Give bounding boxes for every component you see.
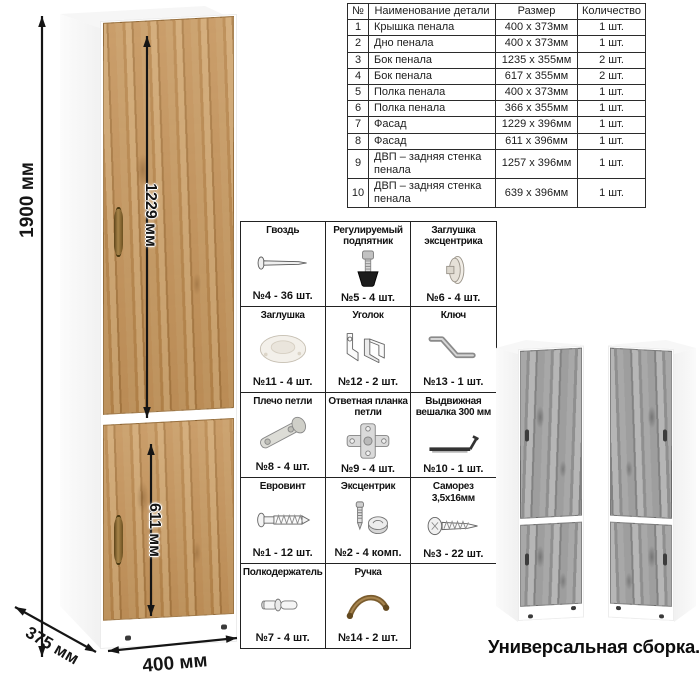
hardware-cell: Евровинт№1 - 12 шт. bbox=[240, 477, 326, 564]
door-handle bbox=[114, 517, 123, 563]
cabinet-plinth bbox=[103, 614, 234, 647]
table-cell: 1257 x 396мм bbox=[496, 149, 578, 178]
door-handle bbox=[663, 429, 667, 441]
corner-bracket-icon bbox=[339, 322, 397, 376]
table-cell: 1 шт. bbox=[578, 149, 646, 178]
assembly-diagram-page: 1900 мм 1229 мм 611 мм 400 мм 375 мм №На… bbox=[0, 0, 700, 683]
table-cell: 2 bbox=[348, 36, 369, 52]
hardware-name: Уголок bbox=[352, 310, 383, 322]
hardware-cell: Заглушка эксцентрика№6 - 4 шт. bbox=[410, 221, 496, 308]
hardware-name: Ключ bbox=[441, 310, 466, 322]
table-cell: 611 x 396мм bbox=[496, 133, 578, 149]
hardware-qty: №14 - 2 шт. bbox=[338, 632, 398, 644]
hardware-cell: Гвоздь№4 - 36 шт. bbox=[240, 221, 326, 308]
mini-cabinet-left bbox=[492, 340, 588, 628]
shelf-pin-icon bbox=[254, 578, 312, 632]
adjustable-foot-icon bbox=[339, 248, 397, 292]
table-cell: 4 bbox=[348, 68, 369, 84]
hardware-name: Ответная планка петли bbox=[328, 396, 408, 419]
hardware-cell: Выдвижная вешалка 300 мм№10 - 1 шт. bbox=[410, 392, 496, 479]
table-cell: 639 x 396мм bbox=[496, 179, 578, 208]
parts-table: №Наименование деталиРазмерКоличество 1Кр… bbox=[347, 3, 646, 208]
nail-icon bbox=[254, 236, 312, 290]
table-cell: 1229 x 396мм bbox=[496, 117, 578, 133]
table-cell: 5 bbox=[348, 84, 369, 100]
hex-key-icon bbox=[424, 322, 482, 376]
table-row: 8Фасад611 x 396мм1 шт. bbox=[348, 133, 646, 149]
cabinet-foot bbox=[616, 606, 621, 610]
table-header-cell: Наименование детали bbox=[369, 4, 496, 20]
hardware-qty: №2 - 4 комп. bbox=[334, 547, 401, 559]
hardware-cell: Регулируемый подпятник№5 - 4 шт. bbox=[325, 221, 411, 308]
hardware-cell: Плечо петли№8 - 4 шт. bbox=[240, 392, 326, 479]
table-cell: Дно пенала bbox=[369, 36, 496, 52]
door-handle bbox=[525, 429, 529, 441]
universal-assembly-caption: Универсальная сборка. bbox=[488, 636, 700, 658]
hardware-cell-empty bbox=[410, 563, 496, 650]
hardware-qty: №12 - 2 шт. bbox=[338, 376, 398, 388]
mini-upper-door bbox=[520, 348, 582, 519]
table-row: 2Дно пенала400 x 373мм1 шт. bbox=[348, 36, 646, 52]
table-cell: 400 x 373мм bbox=[496, 36, 578, 52]
table-cell: 1 шт. bbox=[578, 36, 646, 52]
hardware-cell: Ручка№14 - 2 шт. bbox=[325, 563, 411, 650]
mini-upper-door bbox=[610, 348, 672, 519]
hardware-name: Заглушка эксцентрика bbox=[413, 225, 493, 248]
table-cell: 1 шт. bbox=[578, 117, 646, 133]
table-header-cell: Размер bbox=[496, 4, 578, 20]
hardware-name: Полкодержатель bbox=[243, 567, 323, 579]
table-row: 9ДВП – задняя стенка пенала1257 x 396мм1… bbox=[348, 149, 646, 178]
table-row: 3Бок пенала1235 x 355мм2 шт. bbox=[348, 52, 646, 68]
hardware-qty: №11 - 4 шт. bbox=[253, 376, 313, 388]
table-row: 5Полка пенала400 x 373мм1 шт. bbox=[348, 84, 646, 100]
table-cell: Бок пенала bbox=[369, 52, 496, 68]
dimension-label-width: 400 мм bbox=[142, 650, 209, 678]
cabinet-foot bbox=[221, 624, 227, 629]
lower-door bbox=[103, 418, 234, 621]
hardware-qty: №13 - 1 шт. bbox=[423, 376, 483, 388]
handle-icon bbox=[339, 578, 397, 632]
hardware-name: Заглушка bbox=[261, 310, 305, 322]
table-cell: ДВП – задняя стенка пенала bbox=[369, 179, 496, 208]
hardware-name: Гвоздь bbox=[266, 225, 299, 237]
hardware-qty: №9 - 4 шт. bbox=[341, 463, 395, 475]
table-cell: 1 шт. bbox=[578, 84, 646, 100]
table-cell: 1 шт. bbox=[578, 20, 646, 36]
dimension-label-lower-door: 611 мм bbox=[145, 503, 163, 557]
hardware-qty: №6 - 4 шт. bbox=[426, 292, 480, 304]
hardware-grid: Гвоздь№4 - 36 шт.Регулируемый подпятник№… bbox=[240, 221, 496, 649]
mini-lower-door bbox=[520, 522, 582, 607]
table-cell: 400 x 373мм bbox=[496, 84, 578, 100]
universal-assembly-illustration bbox=[492, 340, 700, 630]
hardware-cell: Ключ№13 - 1 шт. bbox=[410, 306, 496, 393]
cabinet-side-panel bbox=[55, 6, 105, 661]
cabinet-foot bbox=[125, 635, 131, 640]
upper-door bbox=[103, 16, 234, 415]
hardware-qty: №1 - 12 шт. bbox=[253, 547, 313, 559]
mini-cabinet-right bbox=[604, 340, 700, 628]
table-cell: 1 шт. bbox=[578, 179, 646, 208]
hardware-cell: Полкодержатель№7 - 4 шт. bbox=[240, 563, 326, 650]
hardware-name: Эксцентрик bbox=[341, 481, 395, 493]
mini-lower-door bbox=[610, 522, 672, 607]
table-cell: Крышка пенала bbox=[369, 20, 496, 36]
table-cell: 6 bbox=[348, 101, 369, 117]
table-row: 7Фасад1229 x 396мм1 шт. bbox=[348, 117, 646, 133]
table-header-cell: № bbox=[348, 4, 369, 20]
hardware-cell: Ответная планка петли№9 - 4 шт. bbox=[325, 392, 411, 479]
hardware-qty: №3 - 22 шт. bbox=[423, 548, 483, 560]
table-row: 4Бок пенала617 x 355мм2 шт. bbox=[348, 68, 646, 84]
table-cell: Полка пенала bbox=[369, 101, 496, 117]
door-handle bbox=[114, 209, 123, 255]
door-handle bbox=[663, 553, 667, 565]
cam-cap-icon bbox=[424, 248, 482, 292]
dimension-label-upper-door: 1229 мм bbox=[141, 183, 159, 247]
table-header-row: №Наименование деталиРазмерКоличество bbox=[348, 4, 646, 20]
table-cell: 617 x 355мм bbox=[496, 68, 578, 84]
table-cell: 7 bbox=[348, 117, 369, 133]
mini-cabinet-front bbox=[518, 346, 584, 621]
hardware-qty: №5 - 4 шт. bbox=[341, 292, 395, 304]
mini-cabinet-side-panel bbox=[670, 340, 700, 628]
pullout-hanger-icon bbox=[424, 419, 482, 463]
table-cell: Фасад bbox=[369, 133, 496, 149]
cabinet-illustration bbox=[55, 6, 240, 661]
cabinet-foot bbox=[571, 606, 576, 610]
table-row: 6Полка пенала366 x 355мм1 шт. bbox=[348, 101, 646, 117]
door-handle bbox=[525, 553, 529, 565]
hardware-name: Плечо петли bbox=[253, 396, 312, 408]
table-row: 10ДВП – задняя стенка пенала639 x 396мм1… bbox=[348, 179, 646, 208]
table-row: 1Крышка пенала400 x 373мм1 шт. bbox=[348, 20, 646, 36]
table-cell: 10 bbox=[348, 179, 369, 208]
plug-cap-icon bbox=[254, 322, 312, 376]
hardware-cell: Уголок№12 - 2 шт. bbox=[325, 306, 411, 393]
table-cell: 366 x 355мм bbox=[496, 101, 578, 117]
hardware-name: Ручка bbox=[354, 567, 381, 579]
hardware-qty: №10 - 1 шт. bbox=[423, 463, 483, 475]
table-cell: 2 шт. bbox=[578, 68, 646, 84]
hinge-plate-icon bbox=[339, 419, 397, 463]
table-cell: ДВП – задняя стенка пенала bbox=[369, 149, 496, 178]
cabinet-front bbox=[100, 14, 237, 649]
table-cell: Полка пенала bbox=[369, 84, 496, 100]
table-cell: 1 шт. bbox=[578, 133, 646, 149]
hardware-name: Саморез 3,5х16мм bbox=[413, 481, 493, 504]
hardware-cell: Саморез 3,5х16мм№3 - 22 шт. bbox=[410, 477, 496, 564]
hardware-cell: Эксцентрик№2 - 4 комп. bbox=[325, 477, 411, 564]
table-cell: 400 x 373мм bbox=[496, 20, 578, 36]
table-header-cell: Количество bbox=[578, 4, 646, 20]
dimension-label-height: 1900 мм bbox=[17, 162, 39, 238]
hardware-qty: №7 - 4 шт. bbox=[256, 632, 310, 644]
table-cell: 1235 x 355мм bbox=[496, 52, 578, 68]
table-cell: 3 bbox=[348, 52, 369, 68]
cabinet-foot bbox=[659, 614, 664, 618]
table-cell: 9 bbox=[348, 149, 369, 178]
cabinet-foot bbox=[528, 614, 533, 618]
cam-lock-icon bbox=[339, 493, 397, 547]
mini-cabinet-front bbox=[608, 346, 674, 621]
hardware-cell: Заглушка№11 - 4 шт. bbox=[240, 306, 326, 393]
table-cell: Фасад bbox=[369, 117, 496, 133]
table-cell: Бок пенала bbox=[369, 68, 496, 84]
self-tapping-screw-icon bbox=[424, 504, 482, 548]
table-cell: 8 bbox=[348, 133, 369, 149]
hardware-qty: №4 - 36 шт. bbox=[253, 290, 313, 302]
table-cell: 2 шт. bbox=[578, 52, 646, 68]
euro-screw-icon bbox=[254, 493, 312, 547]
table-cell: 1 шт. bbox=[578, 101, 646, 117]
hardware-name: Евровинт bbox=[260, 481, 306, 493]
hardware-name: Регулируемый подпятник bbox=[328, 225, 408, 248]
hardware-qty: №8 - 4 шт. bbox=[256, 461, 310, 473]
hardware-name: Выдвижная вешалка 300 мм bbox=[413, 396, 493, 419]
hinge-arm-icon bbox=[254, 407, 312, 461]
table-cell: 1 bbox=[348, 20, 369, 36]
